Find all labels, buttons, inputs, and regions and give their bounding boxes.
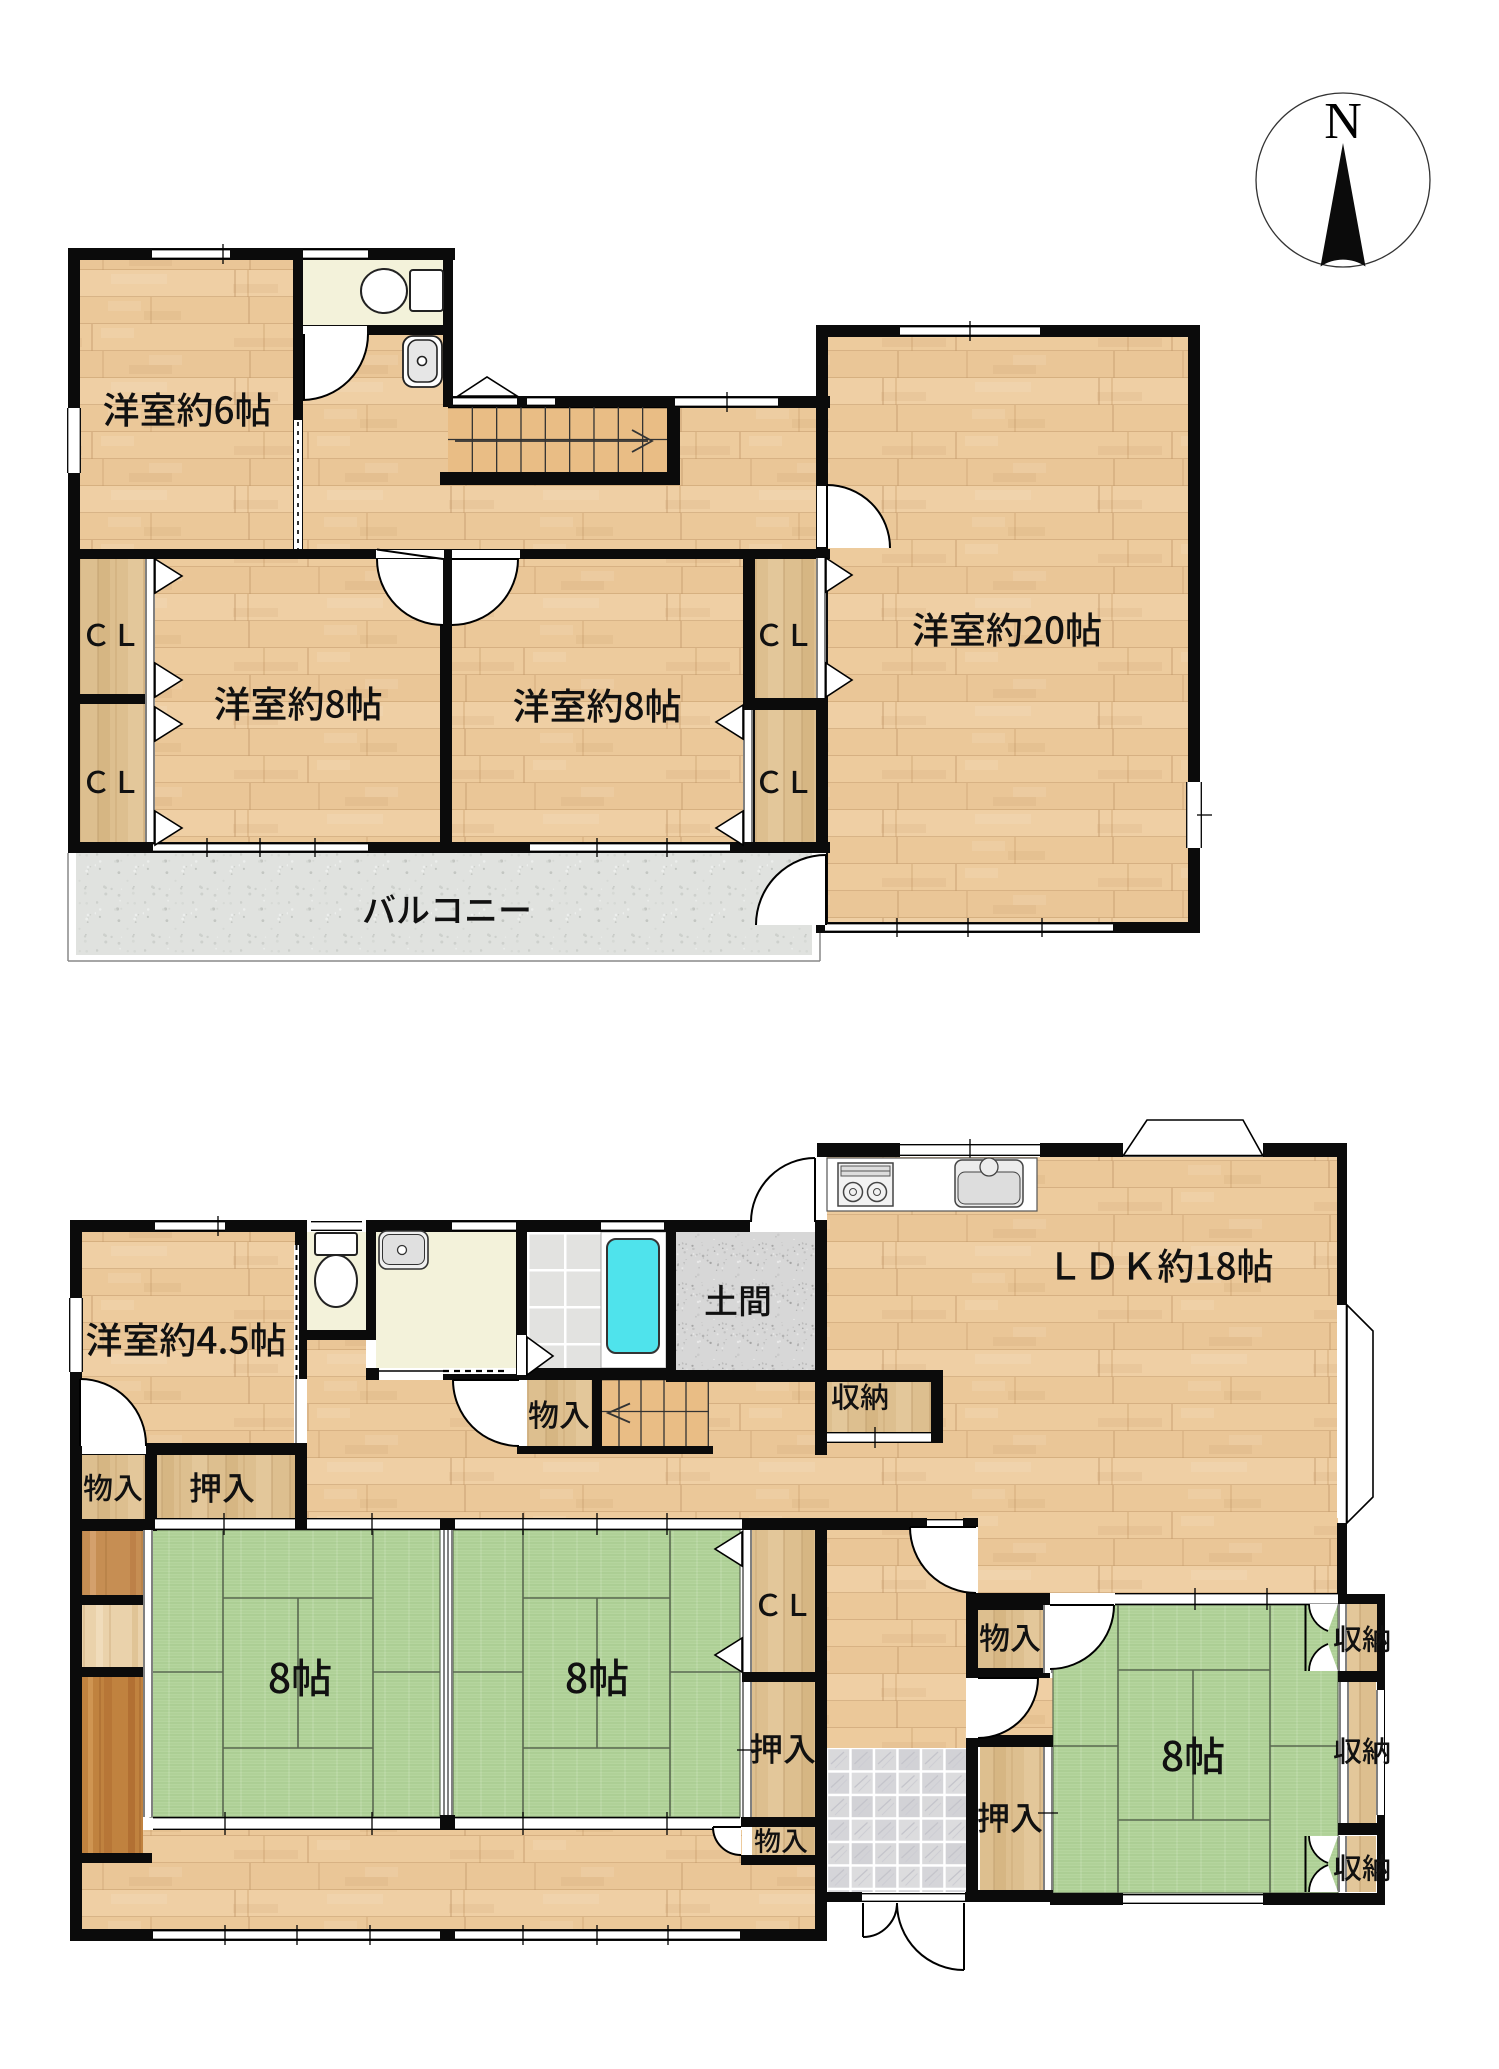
svg-text:N: N [1324,93,1362,150]
